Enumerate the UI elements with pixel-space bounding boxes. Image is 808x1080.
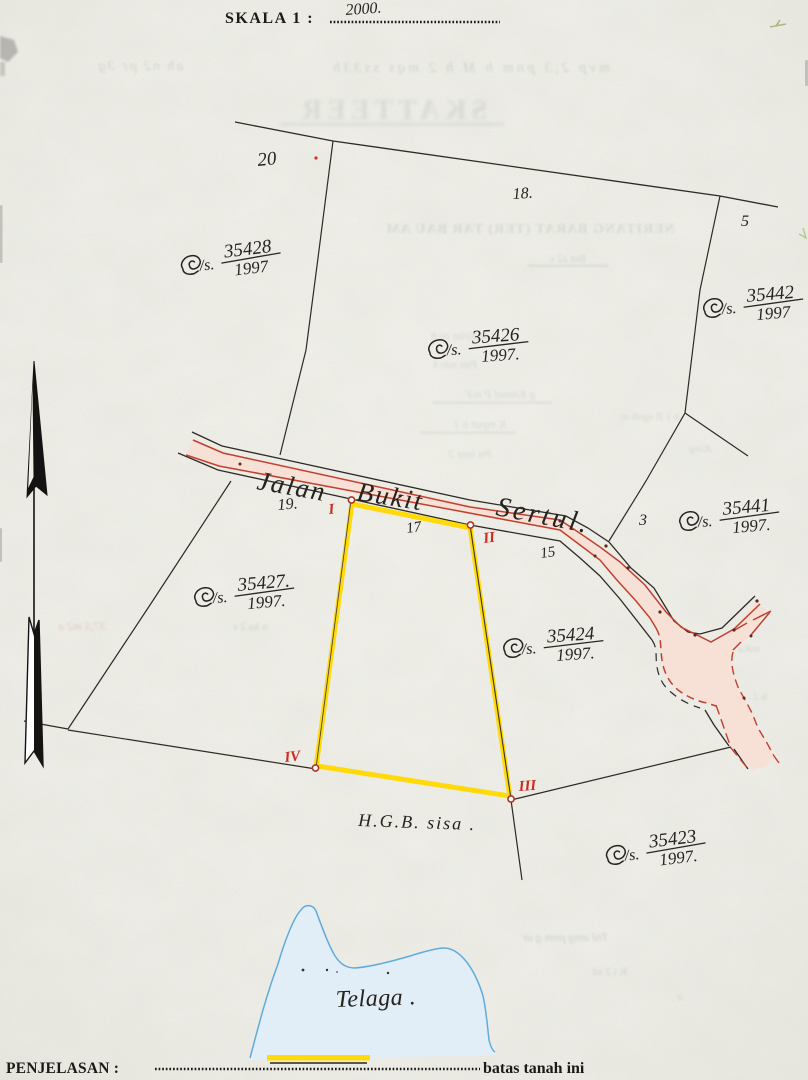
svg-text:H.G.B. sisa .: H.G.B. sisa . bbox=[357, 810, 477, 834]
svg-text:K mpat n 1: K mpat n 1 bbox=[453, 417, 507, 431]
svg-text:Telaga .: Telaga . bbox=[335, 984, 416, 1013]
svg-text:5: 5 bbox=[741, 213, 749, 230]
svg-text:mvp 2,3 pnm h M h 2 mqs ss33h: mvp 2,3 pnm h M h 2 mqs ss33h bbox=[330, 60, 610, 76]
svg-text:King: King bbox=[689, 443, 712, 455]
svg-text:3: 3 bbox=[638, 512, 647, 529]
svg-text:1997.: 1997. bbox=[246, 591, 286, 613]
svg-text:n ha 2 v: n ha 2 v bbox=[232, 621, 268, 633]
svg-text:/s.: /s. bbox=[445, 341, 462, 359]
svg-text:ah n2 pr 3g: ah n2 pr 3g bbox=[97, 59, 184, 74]
svg-text:b 2: b 2 bbox=[753, 691, 767, 703]
svg-text:2000.: 2000. bbox=[345, 0, 382, 19]
svg-text:NERITANG BARAT (TER) TAR BAU A: NERITANG BARAT (TER) TAR BAU AM bbox=[385, 222, 674, 237]
svg-text:1997: 1997 bbox=[755, 302, 792, 324]
svg-text:1997.: 1997. bbox=[481, 344, 520, 366]
svg-text:Pnn ndn k: Pnn ndn k bbox=[432, 359, 479, 371]
svg-text:h 1 B ngnh ta: h 1 B ngnh ta bbox=[620, 411, 680, 423]
svg-text:37,5 m2 a: 37,5 m2 a bbox=[58, 619, 107, 633]
svg-text:K t 2 sd: K t 2 sd bbox=[592, 966, 627, 978]
svg-text:/s.: /s. bbox=[520, 640, 537, 658]
svg-text:PENJELASAN :: PENJELASAN : bbox=[6, 1060, 119, 1077]
svg-text:III: III bbox=[517, 778, 538, 795]
svg-text:Tnl amg pnm g ar: Tnl amg pnm g ar bbox=[522, 930, 608, 944]
svg-text:18.: 18. bbox=[512, 185, 533, 203]
svg-text:batas tanah ini: batas tanah ini bbox=[483, 1060, 585, 1077]
svg-text:1997.: 1997. bbox=[731, 515, 771, 537]
svg-text:g Knmal P n/F: g Knmal P n/F bbox=[464, 387, 535, 401]
svg-text:a: a bbox=[677, 991, 682, 1003]
svg-text:Bnt a2 s: Bnt a2 s bbox=[550, 253, 586, 265]
svg-text:/s.: /s. bbox=[198, 256, 216, 275]
svg-text:/s.: /s. bbox=[211, 589, 228, 607]
svg-text:15: 15 bbox=[539, 544, 557, 562]
svg-text:20: 20 bbox=[256, 148, 278, 171]
svg-text:/s.: /s. bbox=[696, 513, 713, 531]
svg-text:SKALA 1 :: SKALA 1 : bbox=[225, 10, 314, 27]
svg-text:Pn mnt 2: Pn mnt 2 bbox=[448, 447, 492, 461]
svg-text:1997.: 1997. bbox=[556, 643, 595, 665]
svg-text:/s.: /s. bbox=[623, 846, 641, 865]
svg-text:/s.: /s. bbox=[720, 300, 737, 318]
svg-text:SKATTEER: SKATTEER bbox=[297, 95, 487, 126]
